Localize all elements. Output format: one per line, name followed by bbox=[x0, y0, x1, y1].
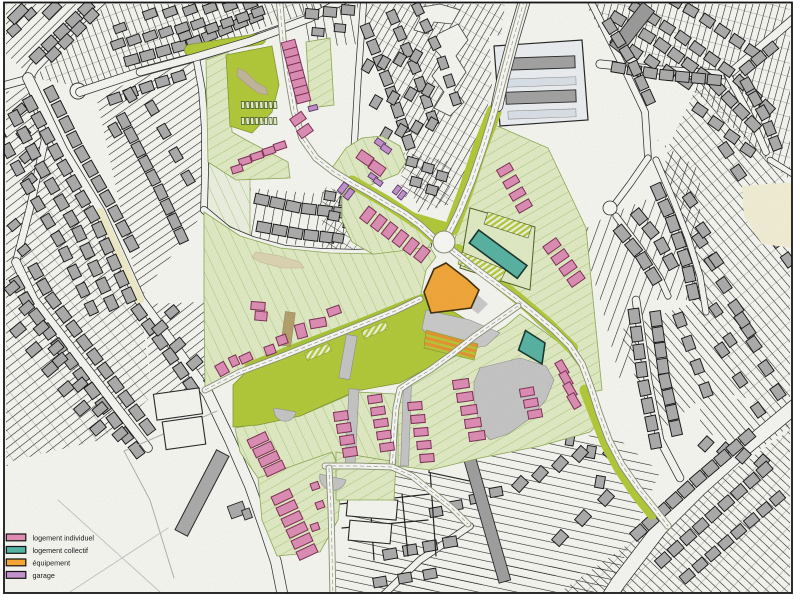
svg-text:logement individuel: logement individuel bbox=[33, 534, 95, 543]
svg-text:équipement: équipement bbox=[33, 559, 71, 568]
svg-text:logement collectif: logement collectif bbox=[33, 546, 89, 555]
svg-text:garage: garage bbox=[33, 571, 55, 580]
